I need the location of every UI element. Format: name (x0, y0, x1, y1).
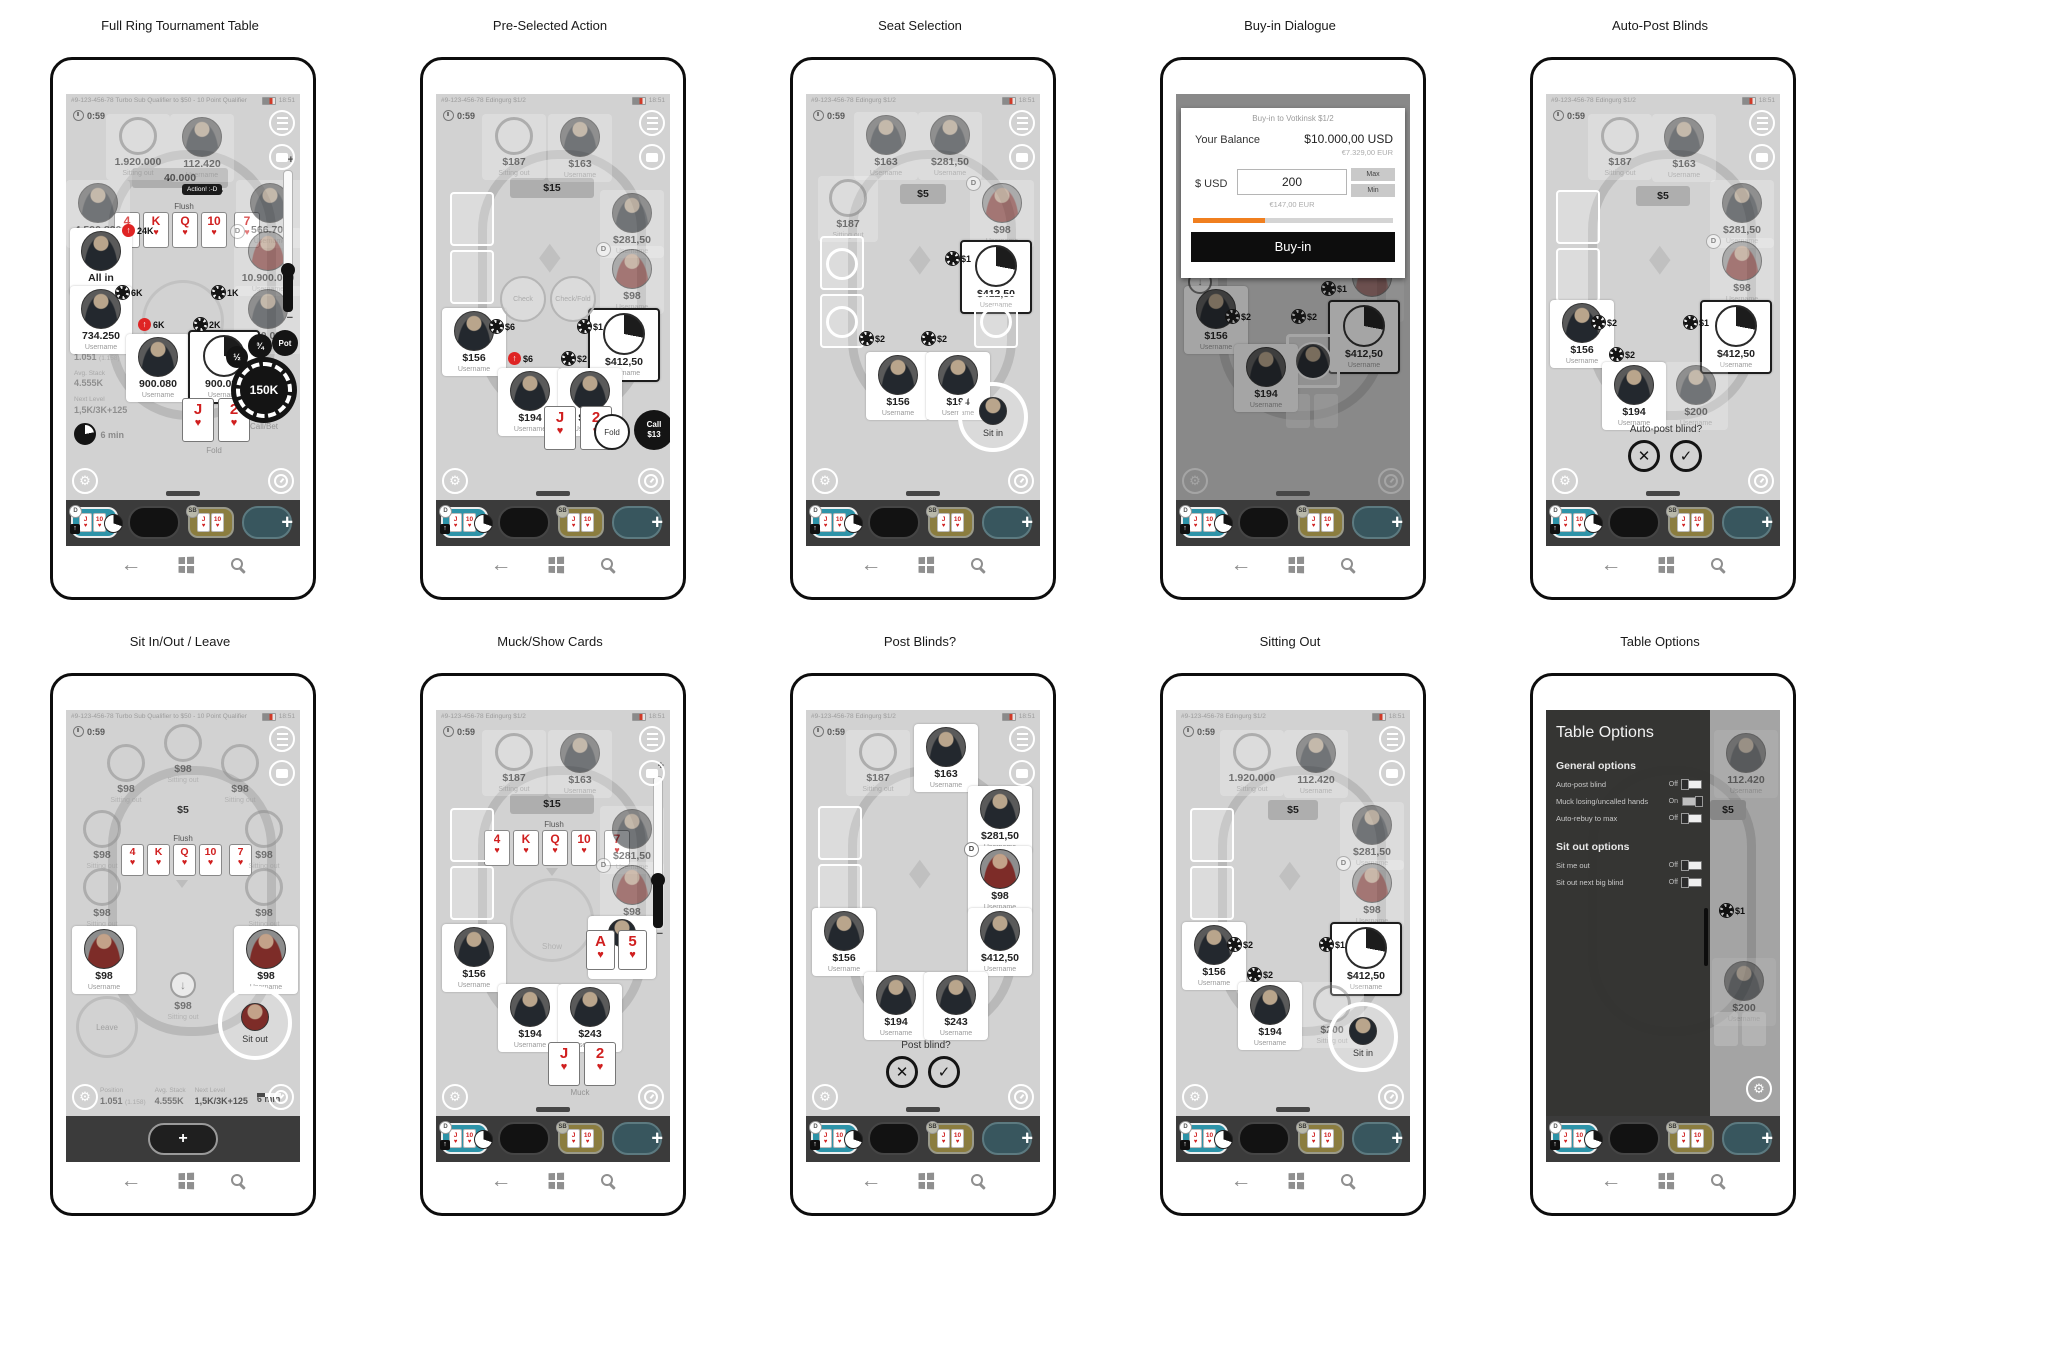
toggle-muck-hands[interactable] (1682, 797, 1702, 806)
back-button[interactable]: ← (491, 1170, 512, 1191)
hand-timer: 0:59 (1183, 726, 1215, 737)
menu-button[interactable] (1749, 110, 1775, 136)
table-tile-active[interactable]: DJ♥10♥↑ (1181, 507, 1228, 538)
hand-timer: 0:59 (443, 110, 475, 121)
option-row: Sit out next big blindOff (1556, 878, 1702, 887)
preselect-check-fold-button[interactable]: Check/Fold (550, 276, 596, 322)
phone-table-options: 112.420Username $5 $1 $200Username ⚙ Tab… (1530, 673, 1796, 1216)
chat-icon (1016, 769, 1028, 778)
avatar (454, 927, 494, 967)
slider-knob[interactable] (281, 263, 295, 277)
table-tile[interactable] (1238, 1122, 1290, 1155)
raise-icon: ↑ (122, 224, 135, 237)
windows-button[interactable] (918, 1172, 934, 1189)
chat-icon (1756, 153, 1768, 162)
mockup-title: Buy-in Dialogue (1157, 18, 1423, 33)
settings-button[interactable]: ⚙ (442, 1084, 468, 1110)
raise-indicator-icon: ↑ (810, 1140, 820, 1150)
shown-card: A♥ (586, 930, 615, 970)
table-tile-active[interactable]: DJ♥10♥↑ (441, 1123, 488, 1154)
empty-seat[interactable] (450, 808, 494, 862)
empty-avatar (164, 724, 202, 762)
mini-card: 10♥ (581, 1129, 594, 1148)
windows-button[interactable] (178, 1172, 194, 1189)
bet-three-quarter-pot-button[interactable]: ¾ (248, 334, 272, 358)
table-bar-handle[interactable] (536, 491, 570, 496)
avatar (980, 789, 1020, 829)
min-button[interactable]: Min (1351, 184, 1395, 197)
panel-title: Table Options (1556, 724, 1710, 742)
toggle-auto-post-blind[interactable] (1682, 780, 1702, 789)
bet-chips: $2 (860, 332, 885, 345)
table-tile[interactable]: SBJ♥10♥ (188, 507, 234, 538)
option-row: Sit me outOff (1556, 861, 1702, 870)
chat-button[interactable] (1749, 144, 1775, 170)
hand-timer: 0:59 (73, 110, 105, 121)
small-blind-badge: SB (556, 505, 569, 518)
heart-icon: ♥ (568, 523, 579, 529)
settings-button[interactable]: ⚙ (442, 468, 468, 494)
back-button[interactable]: ← (1231, 1170, 1252, 1191)
back-button[interactable]: ← (1601, 554, 1622, 575)
seat: $412,50Username (968, 908, 1032, 976)
heart-icon: ♥ (568, 1139, 579, 1145)
avatar (1664, 117, 1704, 157)
table-tile-active[interactable]: DJ♥10♥↑ (441, 507, 488, 538)
gauge-icon (644, 474, 658, 488)
table-bar-handle[interactable] (1646, 491, 1680, 496)
seat: $163Username (854, 112, 918, 180)
add-table-button[interactable]: + (1391, 1128, 1403, 1151)
mini-card: 10♥ (951, 1129, 964, 1148)
seat-sitting-out-self: ↓$98Sitting out (153, 972, 213, 1022)
table-tile[interactable]: SBJ♥10♥ (1668, 507, 1714, 538)
heart-icon: ♥ (183, 418, 213, 429)
seat: $163Username (1652, 114, 1716, 182)
seat: $281,50Username (918, 112, 982, 180)
windows-button[interactable] (1658, 556, 1674, 573)
phone-nav-bar: ← (806, 554, 1040, 575)
seat: $156Username (442, 308, 506, 376)
table-bar-handle[interactable] (906, 1107, 940, 1112)
seat: $163Username (548, 114, 612, 182)
bet-chips: $2 (562, 352, 587, 365)
add-table-button[interactable]: + (1761, 512, 1773, 535)
bet-half-pot-button[interactable]: ½ (226, 346, 248, 368)
heart-icon: ♥ (173, 228, 197, 237)
settings-button[interactable]: ⚙ (72, 1084, 98, 1110)
avatar (570, 371, 610, 411)
empty-seat[interactable] (974, 294, 1018, 348)
mini-card: J♥ (819, 513, 832, 532)
heart-icon: ♥ (1322, 523, 1333, 529)
avatar (1676, 365, 1716, 405)
menu-button[interactable] (269, 110, 295, 136)
chip-icon (1592, 316, 1605, 329)
avatar (1296, 733, 1336, 773)
board-card: 10♥ (199, 844, 222, 876)
add-table-button[interactable]: + (651, 1128, 663, 1151)
bet-slider[interactable] (283, 170, 293, 312)
add-table-button[interactable]: + (1021, 512, 1033, 535)
small-blind-badge: SB (556, 1121, 569, 1134)
dealer-badge: D (439, 1121, 452, 1134)
windows-button[interactable] (1658, 1172, 1674, 1189)
add-table-button[interactable]: + (651, 512, 663, 535)
chip-icon (1684, 316, 1697, 329)
hand-timer: 0:59 (443, 726, 475, 737)
seat: D$98Username (968, 846, 1032, 914)
table-tile[interactable]: SBJ♥10♥ (1668, 1123, 1714, 1154)
mini-timer-pie (104, 514, 123, 533)
avatar (182, 117, 222, 157)
menu-button[interactable] (639, 726, 665, 752)
close-icon: ✕ (896, 1063, 909, 1081)
table-bar-handle[interactable] (1276, 491, 1310, 496)
table-tile[interactable]: SBJ♥10♥ (928, 1123, 974, 1154)
table-tile[interactable] (128, 506, 180, 539)
search-button[interactable] (230, 1173, 246, 1189)
search-button[interactable] (1340, 1173, 1356, 1189)
empty-avatar (1601, 117, 1639, 155)
sit-in-button[interactable]: Sit in (1328, 1002, 1398, 1072)
search-button[interactable] (970, 557, 986, 573)
phone-nav-bar: ← (1546, 1170, 1780, 1191)
mini-card: J♥ (1189, 1129, 1202, 1148)
dealer-button: D (964, 842, 979, 857)
search-button[interactable] (600, 1173, 616, 1189)
empty-seat[interactable] (820, 236, 864, 290)
avatar (84, 929, 124, 969)
menu-button[interactable] (1009, 726, 1035, 752)
heart-icon: ♥ (1190, 1139, 1201, 1145)
table-tile[interactable] (1608, 506, 1660, 539)
toggle-auto-rebuy[interactable] (1682, 814, 1702, 823)
pot: $5 (1636, 186, 1690, 206)
heart-icon: ♥ (148, 858, 169, 867)
mini-card: 10♥ (951, 513, 964, 532)
mini-card: J♥ (937, 513, 950, 532)
table-info-button[interactable] (268, 1084, 294, 1110)
table-tile-active[interactable]: DJ♥10♥↑ (811, 507, 858, 538)
buyin-amount-input[interactable] (1237, 169, 1347, 195)
add-table-button[interactable]: + (1761, 1128, 1773, 1151)
avatar (1722, 241, 1762, 281)
empty-seat[interactable] (450, 250, 494, 304)
mini-card: J♥ (567, 513, 580, 532)
heart-icon: ♥ (952, 1139, 963, 1145)
chat-button[interactable] (639, 144, 665, 170)
windows-button[interactable] (918, 556, 934, 573)
windows-button[interactable] (548, 556, 564, 573)
chip-icon (490, 320, 503, 333)
table-tile[interactable]: SBJ♥10♥ (1298, 1123, 1344, 1154)
sit-in-button[interactable]: Sit in (958, 382, 1028, 452)
heart-icon: ♥ (545, 426, 575, 437)
chip-icon (1320, 938, 1333, 951)
mini-timer-pie (1584, 1130, 1603, 1149)
table-tile-active[interactable]: DJ♥10♥↑ (1181, 1123, 1228, 1154)
back-button[interactable]: ← (1231, 554, 1252, 575)
gear-icon: ⚙ (79, 473, 91, 489)
add-table-button[interactable]: + (148, 1123, 218, 1155)
back-button[interactable]: ← (121, 554, 142, 575)
call-bet-button[interactable]: 150K (236, 362, 292, 418)
fold-button[interactable]: Fold (594, 414, 630, 450)
chip-icon (212, 286, 225, 299)
clock-icon (813, 726, 824, 737)
seat-sitting-out: $98Sitting out (72, 868, 132, 929)
settings-button[interactable]: ⚙ (72, 468, 98, 494)
balance-eur: €7.329,00 EUR (1342, 148, 1393, 157)
mini-card: J♥ (1677, 513, 1690, 532)
accept-button[interactable]: ✓ (1670, 440, 1702, 472)
buyin-button[interactable]: Buy-in (1191, 232, 1395, 262)
seat: $156Username (1550, 300, 1614, 368)
buyin-slider[interactable] (1193, 218, 1393, 223)
slider-minus[interactable]: − (657, 928, 663, 940)
mini-card: J♥ (1189, 513, 1202, 532)
avatar (570, 987, 610, 1027)
avatar (878, 355, 918, 395)
windows-button[interactable] (1288, 556, 1304, 573)
empty-seat[interactable] (1190, 866, 1234, 920)
bet-slider[interactable] (653, 776, 663, 928)
chat-button[interactable] (1009, 760, 1035, 786)
back-button[interactable]: ← (861, 1170, 882, 1191)
gauge-icon (1754, 474, 1768, 488)
chat-button[interactable] (269, 144, 295, 170)
chip-icon (1610, 348, 1623, 361)
table-tile[interactable]: SBJ♥10♥ (558, 1123, 604, 1154)
phone-seat-selection: #9-123-456-78 Edingurg $1/218:51 0:59 $5… (790, 57, 1056, 600)
menu-button[interactable] (1009, 110, 1035, 136)
seat: D$98Username (1340, 860, 1404, 928)
heart-icon: ♥ (820, 523, 831, 529)
chat-icon (646, 769, 658, 778)
table-tile[interactable] (498, 506, 550, 539)
seat: $281,50Username (968, 786, 1032, 854)
toggle-sit-me-out[interactable] (1682, 861, 1702, 870)
call-button[interactable]: Call$13 (634, 410, 670, 450)
back-button[interactable]: ← (121, 1170, 142, 1191)
clock-icon (1183, 726, 1194, 737)
hole-card: J♥ (544, 406, 576, 450)
raise-indicator-icon: ↑ (1180, 1140, 1190, 1150)
show-action-circle: Show (510, 878, 594, 962)
empty-seat[interactable] (1556, 248, 1600, 302)
settings-button[interactable]: ⚙ (812, 468, 838, 494)
chat-button[interactable] (1009, 144, 1035, 170)
table-tile[interactable]: SBJ♥10♥ (928, 507, 974, 538)
table-tile-active[interactable]: DJ♥10♥↑ (811, 1123, 858, 1154)
bet-pot-button[interactable]: Pot (272, 330, 298, 356)
dealer-badge: D (809, 1121, 822, 1134)
clock-icon (1553, 110, 1564, 121)
tournament-info-row: Position1.051 (1.158) Avg. Stack4.555K N… (100, 1086, 290, 1107)
settings-button[interactable]: ⚙ (812, 1084, 838, 1110)
chat-icon (276, 153, 288, 162)
table-tile[interactable] (1238, 506, 1290, 539)
avatar (612, 193, 652, 233)
hand-timer: 0:59 (813, 110, 845, 121)
turn-timer-pie (603, 313, 645, 355)
chip-icon (1228, 938, 1241, 951)
status-bar: #9-123-456-78 Edingurg $1/218:51 (1176, 710, 1410, 723)
settings-button[interactable]: ⚙ (1552, 468, 1578, 494)
battery-icon (1002, 713, 1016, 721)
pointer-triangle (546, 868, 558, 876)
avatar (979, 397, 1007, 425)
dealer-button: D (596, 858, 611, 873)
multi-table-bar: + (66, 1116, 300, 1162)
screen: #9-123-456-78 Turbo Sub Qualifier to $50… (66, 94, 300, 546)
menu-button[interactable] (1379, 726, 1405, 752)
avatar (612, 249, 652, 289)
menu-button[interactable] (639, 110, 665, 136)
menu-button[interactable] (269, 726, 295, 752)
chat-button[interactable] (639, 760, 665, 786)
table-tile-active[interactable]: DJ♥10♥↑ (1551, 507, 1598, 538)
table-tile-active[interactable]: DJ♥10♥↑ (71, 507, 118, 538)
mini-card: J♥ (567, 1129, 580, 1148)
windows-button[interactable] (548, 1172, 564, 1189)
decline-button[interactable]: ✕ (886, 1056, 918, 1088)
community-cards: 4♥ K♥ Q♥ 10♥ 7♥ (121, 844, 252, 876)
avatar (248, 289, 288, 329)
seat: D$98Username (970, 180, 1034, 248)
back-button[interactable]: ← (861, 554, 882, 575)
seat-sitting-out: $187Sitting out (1588, 114, 1652, 180)
avatar (612, 865, 652, 905)
empty-seat[interactable] (450, 192, 494, 246)
seat: $194Username (1238, 982, 1302, 1050)
multi-table-bar: DJ♥10♥↑ SBJ♥10♥ + (806, 500, 1040, 546)
table-tile[interactable] (1608, 1122, 1660, 1155)
windows-button[interactable] (178, 556, 194, 573)
search-button[interactable] (1710, 1173, 1726, 1189)
board-card: 10♥ (201, 212, 227, 248)
table-info-button[interactable] (638, 1084, 664, 1110)
table-info-button[interactable] (1008, 1084, 1034, 1110)
add-table-button[interactable]: + (1021, 1128, 1033, 1151)
empty-seat[interactable] (450, 866, 494, 920)
screen: #9-123-456-78 Turbo Sub Qualifier to $50… (66, 710, 300, 1162)
status-bar: #9-123-456-78 Edingurg $1/218:51 (1546, 94, 1780, 107)
raise-bet: ↑24K (122, 224, 154, 237)
panel-scrollbar[interactable] (1704, 908, 1708, 966)
status-bar: #9-123-456-78 Edingurg $1/218:51 (436, 94, 670, 107)
toggle-sit-out-next-bb[interactable] (1682, 878, 1702, 887)
status-clock: 18:51 (279, 713, 295, 720)
search-button[interactable] (1710, 557, 1726, 573)
screen: 112.420Username $5 $1 $200Username ⚙ Tab… (1546, 710, 1780, 1162)
chat-icon (1386, 769, 1398, 778)
leave-button[interactable]: Leave (76, 996, 138, 1058)
settings-button[interactable]: ⚙ (1746, 1076, 1772, 1102)
sit-out-button[interactable]: Sit out (218, 986, 292, 1060)
gauge-icon (644, 1090, 658, 1104)
dealer-badge: D (439, 505, 452, 518)
table-bar-handle[interactable] (906, 491, 940, 496)
bet-chips: $1 (578, 320, 603, 333)
table-bar-handle[interactable] (536, 1107, 570, 1112)
raise-indicator-icon: ↑ (1550, 1140, 1560, 1150)
heart-icon: ♥ (952, 523, 963, 529)
search-button[interactable] (1340, 557, 1356, 573)
table-bar-handle[interactable] (166, 491, 200, 496)
table-tile[interactable] (868, 506, 920, 539)
slider-knob[interactable] (651, 873, 665, 887)
heart-icon: ♥ (450, 523, 461, 529)
menu-icon (1017, 117, 1028, 130)
status-clock: 18:51 (1019, 97, 1035, 104)
search-button[interactable] (600, 557, 616, 573)
chat-button[interactable] (1379, 760, 1405, 786)
chat-button[interactable] (269, 760, 295, 786)
avatar (1722, 183, 1762, 223)
avatar (510, 371, 550, 411)
search-button[interactable] (230, 557, 246, 573)
max-button[interactable]: Max (1351, 168, 1395, 181)
decline-button[interactable]: ✕ (1628, 440, 1660, 472)
heart-icon: ♥ (1190, 523, 1201, 529)
avatar (866, 115, 906, 155)
empty-seat[interactable] (1190, 808, 1234, 862)
add-table-button[interactable]: + (1391, 512, 1403, 535)
table-info-button[interactable] (1378, 1084, 1404, 1110)
avatar (612, 809, 652, 849)
seat: $98Username (72, 926, 136, 994)
table-tile[interactable]: SBJ♥10♥ (558, 507, 604, 538)
windows-button[interactable] (1288, 1172, 1304, 1189)
preselect-check-button[interactable]: Check (500, 276, 546, 322)
table-tile[interactable] (868, 1122, 920, 1155)
table-info-button[interactable] (268, 468, 294, 494)
table-info-button[interactable] (1008, 468, 1034, 494)
table-tile[interactable]: SBJ♥10♥ (1298, 507, 1344, 538)
chat-icon (646, 153, 658, 162)
table-logo: ◆ (1649, 239, 1671, 277)
menu-icon (277, 733, 288, 746)
empty-seat[interactable] (818, 806, 862, 860)
heart-icon: ♥ (938, 523, 949, 529)
search-button[interactable] (970, 1173, 986, 1189)
seat: 112.420Username (1284, 730, 1348, 798)
settings-button[interactable]: ⚙ (1182, 1084, 1208, 1110)
table-bar-handle[interactable] (1276, 1107, 1310, 1112)
back-button[interactable]: ← (491, 554, 512, 575)
table-tile-active[interactable]: DJ♥10♥↑ (1551, 1123, 1598, 1154)
table-info-button[interactable] (1748, 468, 1774, 494)
table-tile[interactable] (498, 1122, 550, 1155)
slider-minus[interactable]: − (287, 312, 293, 324)
mini-card: J♥ (1559, 1129, 1572, 1148)
seat-circle (826, 306, 858, 338)
balance-label: Your Balance (1195, 134, 1260, 146)
add-table-button[interactable]: + (281, 512, 293, 535)
back-button[interactable]: ← (1601, 1170, 1622, 1191)
empty-seat[interactable] (1556, 190, 1600, 244)
bet-chips: $1 (1320, 938, 1345, 951)
mini-card: J♥ (197, 513, 210, 532)
accept-button[interactable]: ✓ (928, 1056, 960, 1088)
heart-icon: ♥ (174, 858, 195, 867)
status-clock: 18:51 (1759, 97, 1775, 104)
mini-card: 10♥ (1691, 513, 1704, 532)
empty-seat[interactable] (820, 294, 864, 348)
table-info-button[interactable] (638, 468, 664, 494)
